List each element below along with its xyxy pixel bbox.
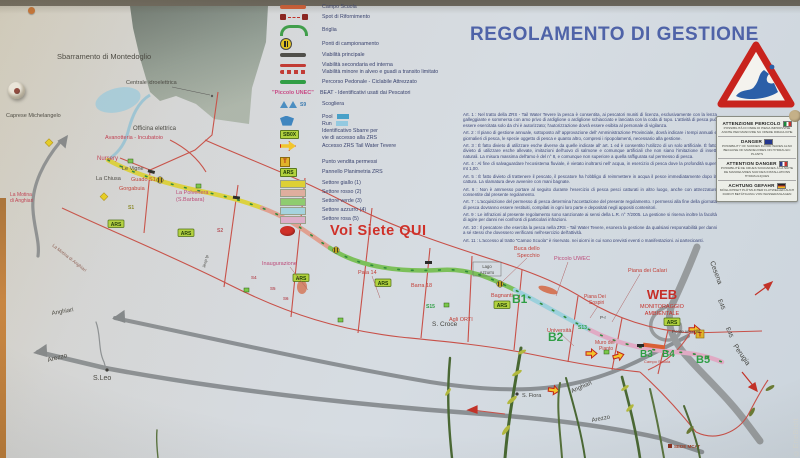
label-piccolo-uwec: Piccolo UWEC [554,256,590,262]
legend-row-spot: Spot di Rifornimento [276,14,370,21]
article: Art. 3 : È fatto divieto di utilizzare e… [463,143,717,159]
label-polveriera2: (S.Barbara) [176,197,205,203]
article: Art. 1 : Nel tratto della ZRS - Tail Wat… [463,112,717,128]
label-s-leo: S.Leo [93,375,111,382]
refuel-spot-icon [276,14,322,20]
legend-row-pool-run: PoolRun [276,114,349,127]
mounting-bolt-right [789,110,800,122]
label-perugia: Perugia [731,343,751,367]
label-web: WEB [647,287,677,302]
legend-row-settore-verde: Settore verde (3) [276,198,362,206]
svg-text:Azzurro: Azzurro [480,270,495,275]
legend-row-punto-vendita: TPunto vendita permessi [276,157,377,167]
beat-s1: S1 [128,205,134,211]
pool-icon [276,116,322,126]
article: Art. 2 : Il piano di gestione annuale, s… [463,130,717,141]
warning-section-de: ACHTUNG GEFAHR MÖGLICHKEIT PLÖTZLICHER F… [718,181,796,198]
riprap-icon: S9 [276,101,322,108]
photo-of-sign: { "photo": { "watermark": "©EneBiott" },… [0,0,800,458]
photo-watermark: ©EneBiott [793,418,800,456]
legend-row-settore-rosso: Settore rosso (2) [276,189,361,197]
secondary-road-icon [276,64,322,74]
uk-flag-icon [764,139,773,145]
legend-row-pannello: ARSPannello Planimetria ZRS [276,168,383,177]
label-e45b: E45 [724,327,734,340]
flood-warning-block: ATTENZIONE PERICOLO POSSIBILITÀ DI ONDE … [712,40,800,202]
sleo-dot [105,368,108,371]
access-arrow-legend-icon [276,141,322,151]
legend-row-viab-secondaria: Viabilità secondaria ed internaViabilità… [276,62,438,75]
label-le-vigne: Le Vigne [122,166,144,172]
label-jeep: Jeep tp [201,254,209,269]
svg-text:Lago: Lago [482,264,492,269]
warning-section-en: DANGER POSSIBILITY OF SUDDEN FLOOD WAVES… [718,137,796,159]
label-gorgabuia: Gorgabuia [119,186,146,192]
road-arrowheads [32,135,127,360]
beat-s4: S4 [251,275,257,280]
svg-text:SEDE MCAT: SEDE MCAT [674,444,700,449]
flood-warning-triangle [716,40,796,112]
regulations-articles: Art. 1 : Nel tratto della ZRS - Tail Wat… [463,112,717,242]
beat-s6: S6 [283,296,289,301]
beat-s5: S5 [270,286,276,291]
label-muro2: Pianto [599,346,613,352]
label-e45a: E45 [716,299,726,312]
sign-frame-edge [0,198,6,458]
legend-row-sbarre: SB0XIdentificativo Sbarre pervie di acce… [276,128,378,141]
article: Art. 11 : L'accesso al tratto "Campo Scu… [463,238,717,243]
svg-text:ARS: ARS [111,222,122,228]
beat-s13: S13 [578,325,587,331]
label-barra18: Barra 18 [411,283,432,289]
label-guado-s1: Guado S1 [131,177,156,183]
warning-section-fr: ATTENTION DANGER POSSIBILITÉ DE CRUES SO… [718,159,796,181]
legend-row-settore-azzurro: Settore azzurro (4) [276,207,366,215]
you-are-here: Voi Siete QUI [276,223,426,239]
lake-montedoglio [130,6,268,124]
beat-s2: S2 [217,228,223,234]
beat-b1: B1 [512,292,528,306]
sfiora-dot [515,392,518,395]
label-motina2: di Anghiari [10,198,33,204]
article: Art. 4 : Al fine di salvaguardare l'ecos… [463,161,717,172]
beat-b2: B2 [548,330,564,344]
legend-row-campo-scuola: Campo Scuola [276,4,357,11]
legend-row-accesso: Accesso ZRS Tail Water Tevere [276,141,396,151]
legend-row-scogliera: S9Scogliera [276,101,344,108]
warning-section-it: ATTENZIONE PERICOLO POSSIBILITÀ DI ONDE … [718,119,796,137]
label-buca2: Specchio [517,253,540,259]
article: Art. 5 : È fatto divieto di trattenere i… [463,174,717,185]
label-motina-road: La Motina di Anghiari [51,243,87,273]
sector-red-chip [276,189,322,197]
label-officina: Officina elettrica [133,126,177,132]
flood-warning-text-panel: ATTENZIONE PERICOLO POSSIBILITÀ DI ONDE … [716,116,798,202]
label-piana-calari: Piana dei Calari [628,268,667,274]
label-centrale: Centrale idroelettrica [126,80,178,86]
sector-yellow-chip [276,180,322,188]
svg-text:ARS: ARS [497,303,508,309]
svg-text:ARS: ARS [378,281,389,287]
article: Art. 9 : Le infrazioni al presente regol… [463,212,717,223]
label-caprese: Caprese Michelangelo [6,113,61,119]
beat-b4: B4 [662,349,675,360]
label-polveriera1: La Polveriera [176,190,209,196]
main-road-icon [276,53,322,57]
legend-row-ponti: Ponti di campionamento [276,38,379,50]
label-inaugurazione: Inaugurazione [262,261,297,267]
label-nursery: Nursery [97,156,118,162]
label-la-chiusa: La Chiusa [96,176,122,182]
sampling-bridge-icon [276,38,322,50]
legend-row-viab-principale: Viabilità principale [276,52,365,59]
article: Art. 10 : Il pescatore che esercita la p… [463,225,717,236]
pedestrian-path-icon [276,80,322,84]
legend-row-percorso: Percorso Pedonale - Ciclabile Attrezzato [276,79,417,86]
beat-b3: B3 [640,349,653,360]
label-bagnanti: Bagnanti [491,293,513,299]
run-chip [336,121,348,126]
piccolo-unec-text: "Piccolo UNEC" [268,90,320,96]
label-web2: MONITORAGGIO [640,304,685,310]
weir-icon [276,25,322,36]
label-arezzo-road: Arezzo [591,414,611,424]
gate-id-icon: SB0X [276,130,322,139]
you-are-here-dot [276,226,322,236]
label-agli-orti: Agli ORTI [449,317,473,323]
sector-green-chip [276,198,322,206]
regulations-title: REGOLAMENTO DI GESTIONE [470,24,726,46]
sede-mcat: SEDE MCAT [668,444,700,449]
centrale-dot [211,95,213,97]
svg-text:ARS: ARS [181,231,192,237]
mounting-bolt-small [28,7,35,14]
label-cesena: Cesena [708,260,723,285]
permit-sale-icon: T [276,157,322,167]
label-anghiari-left: Anghiari [51,307,74,317]
label-sospiri2: Sospiri [589,300,604,306]
legend-row-briglia: Briglia [276,25,337,36]
label-ponte-vecchio: Ponte vecchio [672,329,701,334]
label-s-fiora: S. Fiora [522,393,542,399]
label-web3: AMBIENTALE [645,311,680,317]
article: Art. 6 : Non è ammesso portare al seguit… [463,187,717,198]
mounting-bolt [8,82,25,99]
pool-chip [337,114,349,119]
sector-azure-chip [276,207,322,215]
article: Art. 7 : L'acquisizione del permesso di … [463,199,717,210]
label-pala14: Pala 14 [358,270,377,276]
legend-row-settore-giallo: Settore giallo (1) [276,180,361,188]
beach-patch [538,284,559,296]
label-avanotteria: Avanotteria - Incubatoio [105,135,163,141]
label-buca1: Buca dello [514,246,540,252]
label-sbarramento: Sbarramento di Montedoglio [57,52,151,61]
beat-s15: S15 [426,304,435,310]
legend-row-beat: "Piccolo UNEC"BEAT - Identificativi usat… [276,90,410,97]
svg-text:ARS: ARS [667,320,678,326]
label-p-r: P-r [600,315,607,320]
beat-b5: B5 [696,354,710,366]
campo-scuola-icon [276,5,322,9]
ars-panel-icon: ARS [276,168,322,177]
